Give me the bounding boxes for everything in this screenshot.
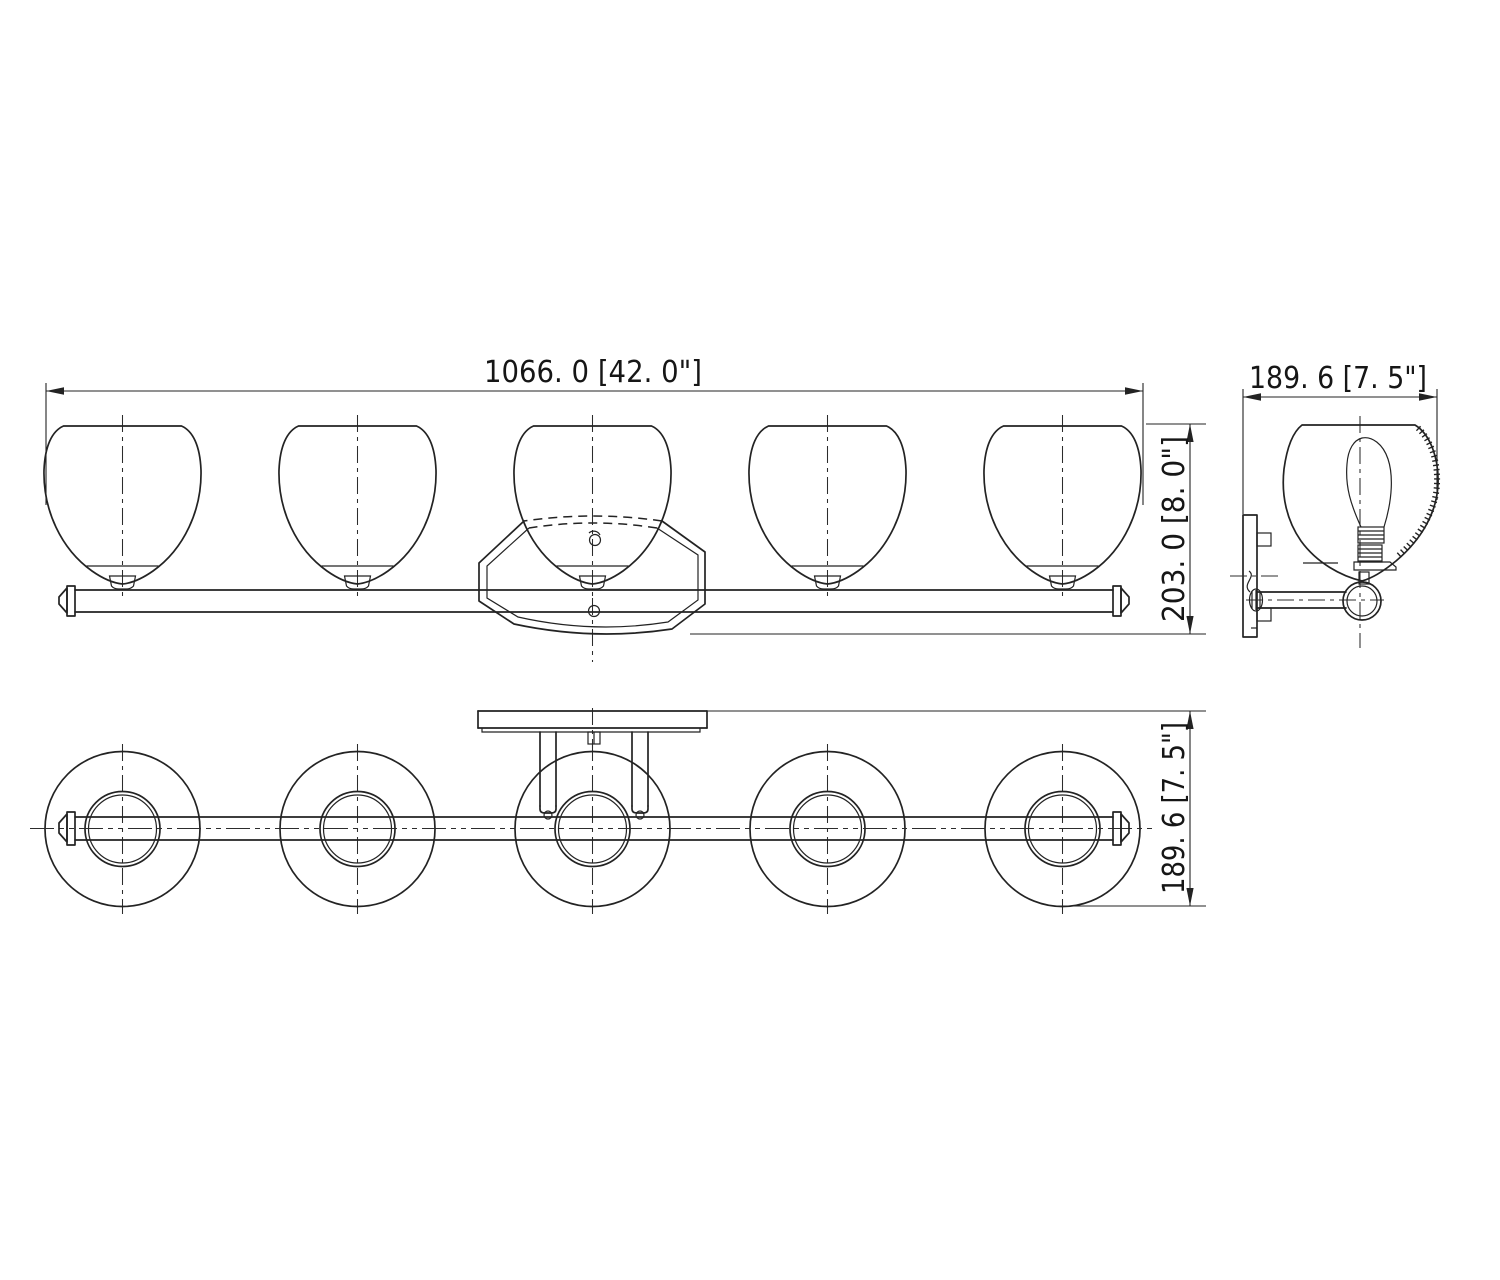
crossbar-front [59, 586, 1129, 616]
plan-view: 189. 6 [7. 5"] [30, 708, 1206, 914]
break-squiggle [1247, 571, 1251, 592]
finial-left [59, 588, 67, 613]
drawing-canvas: 1066. 0 [42. 0"] 203. 0 [8. 0"] [0, 0, 1500, 1280]
front-width-dimension: 1066. 0 [42. 0"] [46, 355, 1143, 505]
glass-rim-hatching [1397, 428, 1437, 557]
plan-depth-dimension: 189. 6 [7. 5"] [707, 711, 1206, 906]
shade-side [1283, 416, 1438, 648]
mounting-tab-upper [1257, 533, 1271, 546]
glass-shades-front [44, 415, 1141, 662]
side-depth-label: 189. 6 [7. 5"] [1249, 361, 1427, 396]
technical-drawing-sheet: 1066. 0 [42. 0"] 203. 0 [8. 0"] [0, 0, 1500, 1280]
front-view: 1066. 0 [42. 0"] 203. 0 [8. 0"] [44, 355, 1206, 662]
backplate-hidden-inner-top [529, 523, 657, 528]
stem-posts-plan [540, 732, 648, 819]
front-width-label: 1066. 0 [42. 0"] [484, 355, 702, 390]
mounting-arm-side [1246, 582, 1384, 620]
knuckle-inner [1347, 586, 1377, 616]
finial-right [1121, 588, 1129, 613]
mounting-screw-lower [589, 606, 600, 617]
bar-end-cap-left [67, 586, 75, 616]
wall-plate-side [1230, 515, 1278, 637]
bar-end-cap-right [1113, 586, 1121, 616]
side-depth-dimension: 189. 6 [7. 5"] [1243, 361, 1437, 514]
lamp-circles-plan [45, 708, 1140, 914]
plan-depth-label: 189. 6 [7. 5"] [1157, 722, 1192, 894]
bulb-side [1347, 438, 1396, 584]
front-height-label: 203. 0 [8. 0"] [1157, 436, 1192, 622]
side-view: 189. 6 [7. 5"] [1230, 361, 1438, 648]
crossbar-plan [30, 812, 1152, 845]
arrowhead-right [1125, 387, 1143, 394]
mounting-screw-upper [590, 535, 601, 546]
bulb-glass [1347, 438, 1392, 527]
arrowhead-left [46, 387, 64, 394]
knuckle-outer [1343, 582, 1381, 620]
